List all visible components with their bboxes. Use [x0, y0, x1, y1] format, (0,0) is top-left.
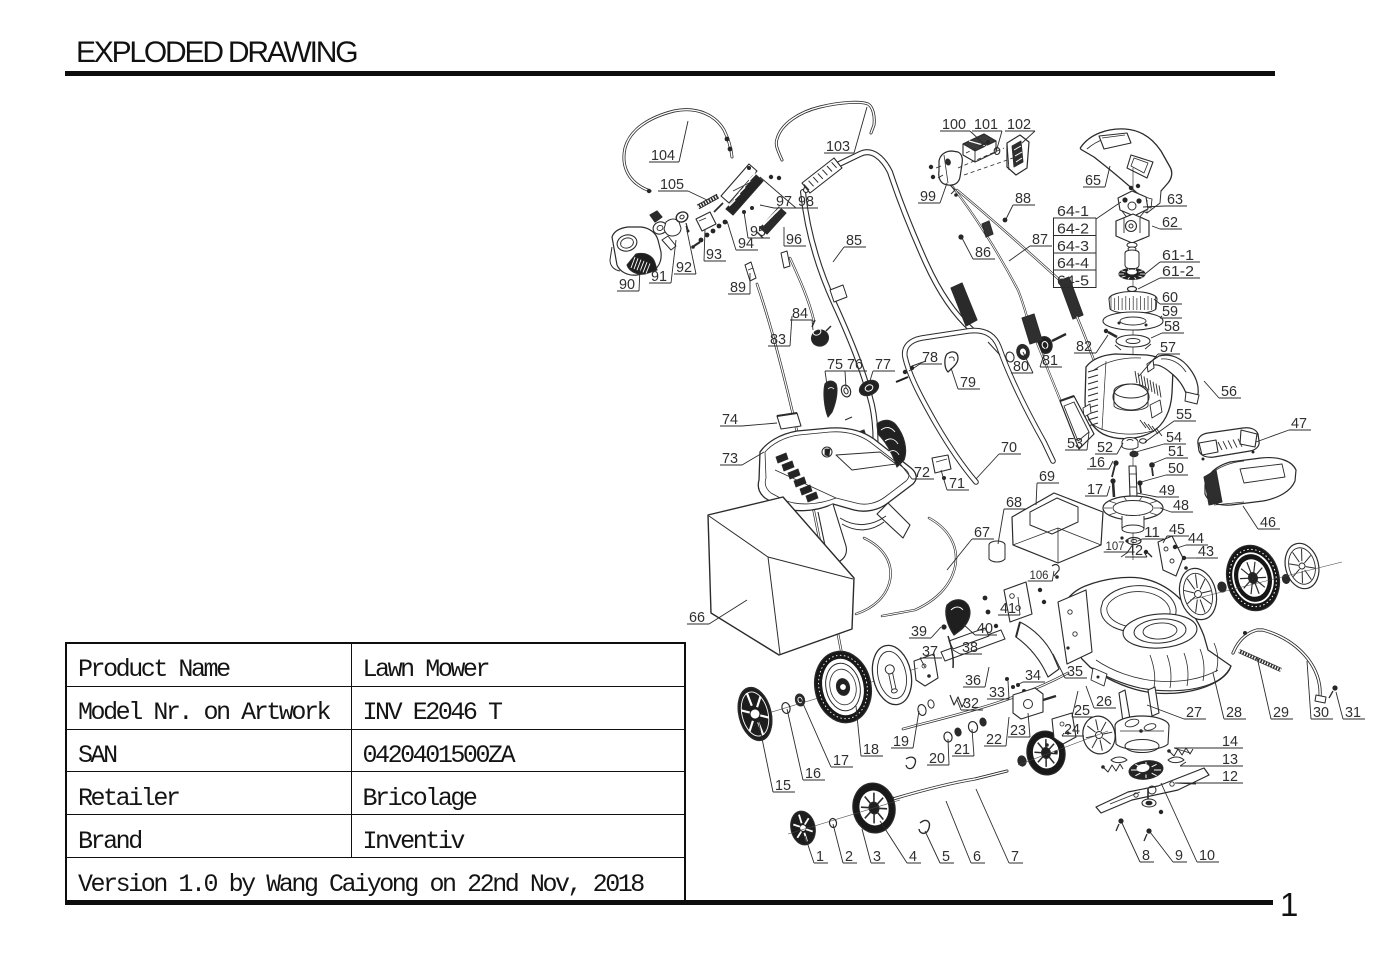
svg-text:48: 48: [1173, 497, 1189, 514]
svg-text:15: 15: [775, 777, 791, 794]
svg-text:73: 73: [722, 450, 738, 467]
svg-text:16: 16: [805, 765, 821, 782]
svg-text:74: 74: [722, 411, 738, 428]
svg-text:50: 50: [1168, 460, 1184, 477]
svg-text:70: 70: [1001, 439, 1017, 456]
svg-text:30: 30: [1313, 704, 1329, 721]
svg-text:64-1: 64-1: [1057, 203, 1089, 220]
svg-text:106: 106: [1030, 568, 1049, 582]
svg-text:17: 17: [833, 752, 849, 769]
svg-text:91: 91: [651, 268, 667, 285]
svg-text:83: 83: [770, 331, 786, 348]
svg-text:27: 27: [1186, 704, 1202, 721]
svg-text:92: 92: [676, 259, 692, 276]
svg-text:7: 7: [1011, 848, 1019, 865]
svg-text:24: 24: [1064, 721, 1080, 738]
svg-text:38: 38: [962, 639, 978, 656]
svg-text:10: 10: [1199, 847, 1215, 864]
svg-text:28: 28: [1226, 704, 1242, 721]
svg-text:56: 56: [1221, 383, 1237, 400]
svg-text:66: 66: [689, 609, 705, 626]
svg-text:37: 37: [922, 643, 938, 660]
svg-text:62: 62: [1162, 214, 1178, 231]
svg-text:103: 103: [826, 138, 850, 155]
svg-text:36: 36: [965, 672, 981, 689]
svg-text:107: 107: [1106, 539, 1125, 553]
svg-text:61-1: 61-1: [1162, 247, 1194, 264]
svg-text:96: 96: [786, 231, 802, 248]
svg-text:29: 29: [1273, 704, 1289, 721]
svg-text:22: 22: [986, 731, 1002, 748]
svg-text:68: 68: [1006, 494, 1022, 511]
svg-text:75: 75: [827, 356, 843, 373]
svg-text:67: 67: [974, 524, 990, 541]
svg-text:3: 3: [873, 848, 881, 865]
svg-text:35: 35: [1067, 663, 1083, 680]
svg-text:43: 43: [1198, 543, 1214, 560]
svg-text:26: 26: [1096, 693, 1112, 710]
svg-text:100: 100: [942, 116, 966, 133]
svg-text:64-5: 64-5: [1057, 273, 1089, 290]
svg-text:34: 34: [1025, 667, 1041, 684]
svg-text:64-4: 64-4: [1057, 255, 1089, 272]
svg-text:69: 69: [1039, 468, 1055, 485]
svg-text:42: 42: [1127, 542, 1143, 559]
svg-text:53: 53: [1067, 435, 1083, 452]
svg-text:21: 21: [954, 741, 970, 758]
svg-text:39: 39: [911, 623, 927, 640]
svg-text:87: 87: [1032, 231, 1048, 248]
svg-text:65: 65: [1085, 172, 1101, 189]
svg-text:97: 97: [776, 193, 792, 210]
svg-text:64-2: 64-2: [1057, 221, 1089, 238]
svg-text:46: 46: [1260, 514, 1276, 531]
svg-text:51: 51: [1168, 443, 1184, 460]
svg-text:6: 6: [973, 848, 981, 865]
svg-text:16: 16: [1089, 454, 1105, 471]
svg-text:2: 2: [845, 848, 853, 865]
svg-text:13: 13: [1222, 751, 1238, 768]
svg-text:58: 58: [1164, 318, 1180, 335]
svg-text:41: 41: [1000, 600, 1016, 617]
svg-text:85: 85: [846, 232, 862, 249]
svg-text:76: 76: [847, 356, 863, 373]
svg-text:31: 31: [1345, 704, 1361, 721]
svg-text:12: 12: [1222, 768, 1238, 785]
svg-text:88: 88: [1015, 190, 1031, 207]
svg-text:40: 40: [977, 620, 993, 637]
svg-text:86: 86: [975, 244, 991, 261]
svg-text:90: 90: [619, 276, 635, 293]
svg-text:72: 72: [914, 464, 930, 481]
svg-text:25: 25: [1074, 702, 1090, 719]
svg-text:57: 57: [1160, 339, 1176, 356]
svg-text:18: 18: [863, 741, 879, 758]
svg-text:17: 17: [1087, 481, 1103, 498]
svg-text:33: 33: [989, 684, 1005, 701]
svg-text:19: 19: [893, 733, 909, 750]
svg-text:104: 104: [651, 147, 675, 164]
svg-text:84: 84: [792, 305, 808, 322]
svg-text:105: 105: [660, 176, 684, 193]
svg-text:79: 79: [960, 374, 976, 391]
svg-text:1: 1: [816, 848, 824, 865]
svg-text:5: 5: [942, 848, 950, 865]
svg-text:45: 45: [1169, 521, 1185, 538]
svg-text:102: 102: [1007, 116, 1031, 133]
svg-text:78: 78: [922, 349, 938, 366]
svg-text:55: 55: [1176, 406, 1192, 423]
svg-text:9: 9: [1175, 847, 1183, 864]
svg-text:23: 23: [1010, 722, 1026, 739]
svg-text:63: 63: [1167, 191, 1183, 208]
svg-text:4: 4: [909, 848, 917, 865]
svg-text:77: 77: [875, 356, 891, 373]
svg-text:94: 94: [738, 235, 754, 252]
svg-text:99: 99: [920, 188, 936, 205]
svg-text:32: 32: [963, 695, 979, 712]
svg-text:71: 71: [949, 475, 965, 492]
svg-text:82: 82: [1076, 338, 1092, 355]
svg-text:93: 93: [706, 246, 722, 263]
svg-text:64-3: 64-3: [1057, 238, 1089, 255]
svg-text:8: 8: [1142, 847, 1150, 864]
svg-text:47: 47: [1291, 415, 1307, 432]
svg-text:11: 11: [1144, 524, 1160, 541]
svg-text:20: 20: [929, 750, 945, 767]
svg-text:14: 14: [1222, 733, 1238, 750]
svg-text:98: 98: [798, 193, 814, 210]
svg-text:61-2: 61-2: [1162, 263, 1194, 280]
svg-text:101: 101: [974, 116, 998, 133]
svg-text:89: 89: [730, 279, 746, 296]
